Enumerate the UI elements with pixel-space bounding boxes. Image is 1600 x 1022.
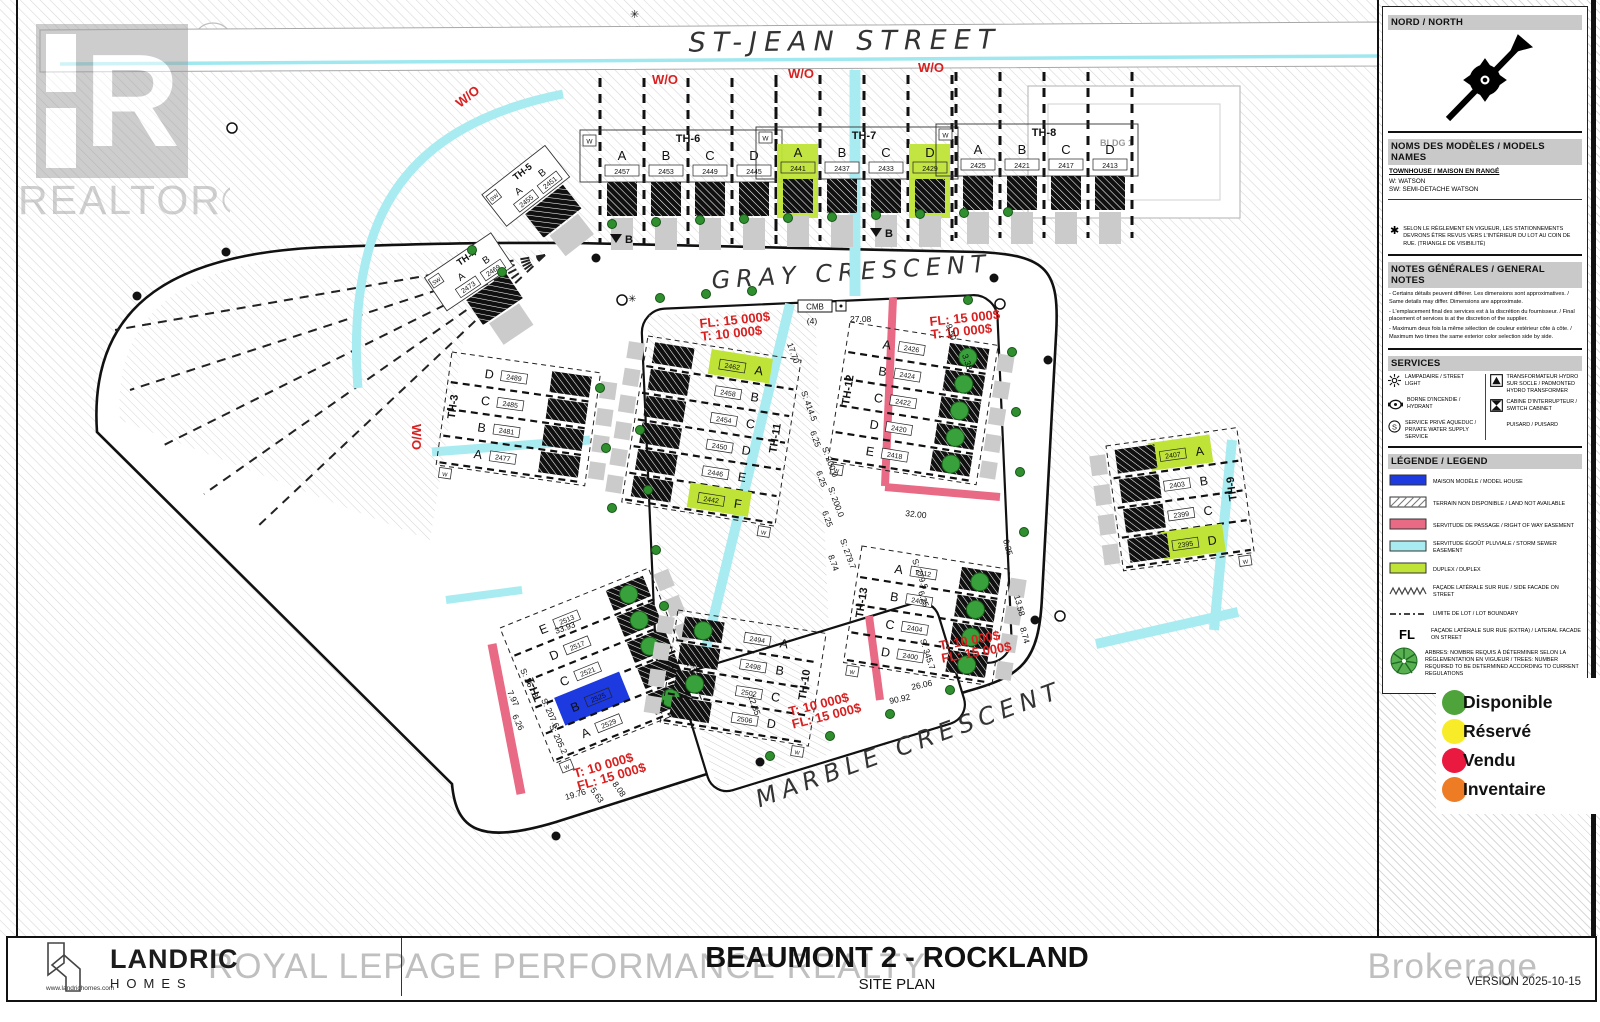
svg-text:C: C: [705, 148, 714, 163]
tree-icon: [886, 710, 895, 719]
tree-icon: [652, 218, 661, 227]
general-note: - Certains détails peuvent différer. Les…: [1389, 291, 1581, 307]
street-light-icon: [1388, 374, 1401, 392]
model-entry: W: WATSON: [1389, 178, 1582, 185]
status-legend: DisponibleRéservéVenduInventaire: [1436, 678, 1600, 814]
tree-icon: [766, 752, 775, 761]
svg-text:A: A: [618, 148, 627, 163]
drawing-title: BEAUMONT 2 - ROCKLAND SITE PLAN: [402, 942, 1392, 993]
svg-text:C: C: [480, 394, 491, 409]
status-item: Vendu: [1442, 748, 1600, 773]
tree-icon: [964, 296, 973, 305]
title-block: ROYAL LEPAGE PERFORMANCE REALTY Brokerag…: [6, 936, 1597, 1002]
panel-divider: [1377, 0, 1379, 936]
tree-icon: [656, 294, 665, 303]
legend-item: MAISON MODÈLE / MODEL HOUSE: [1389, 473, 1581, 491]
legend-swatch-solid: [1389, 539, 1427, 557]
svg-text:2429: 2429: [922, 166, 938, 173]
tree-icon: [652, 546, 661, 555]
svg-text:2457: 2457: [614, 169, 630, 176]
legend-item: FLFAÇADE LATÉRALE SUR RUE (EXTRA) / LATE…: [1389, 627, 1581, 642]
status-item: Inventaire: [1442, 777, 1600, 802]
services-title: SERVICES: [1388, 356, 1582, 371]
services-list: LAMPADAIRE / STREET LIGHTBORNE D'INCENDI…: [1388, 374, 1582, 441]
legend-swatch-solid: [1389, 517, 1427, 535]
tree-icon: [608, 220, 617, 229]
svg-text:B: B: [662, 148, 671, 163]
dimension-label: 27.08: [850, 314, 872, 324]
legend-list: MAISON MODÈLE / MODEL HOUSETERRAIN NON D…: [1388, 473, 1582, 681]
red-note: W/O: [652, 72, 678, 87]
tree-icon: [916, 210, 925, 219]
svg-text:2445: 2445: [746, 169, 762, 176]
models-category: TOWNHOUSE / MAISON EN RANGÉ: [1389, 168, 1582, 175]
svg-text:2421: 2421: [1014, 163, 1030, 170]
svg-text:D: D: [925, 145, 934, 160]
model-entry: SW: SEMI-DETACHE WATSON: [1389, 186, 1582, 193]
svg-text:CMB: CMB: [806, 303, 824, 312]
svg-text:C: C: [1203, 503, 1214, 518]
legend-swatch-tree: [1389, 646, 1419, 681]
svg-text:2437: 2437: [834, 166, 850, 173]
tree-icon: [602, 444, 611, 453]
tree-icon: [740, 215, 749, 224]
tree-icon: [872, 211, 881, 220]
tree-icon: [1020, 528, 1029, 537]
svg-text:D: D: [749, 148, 758, 163]
svg-text:D: D: [484, 367, 495, 382]
legend-title: LÉGENDE / LEGEND: [1388, 454, 1582, 469]
drawing-type: SITE PLAN: [402, 976, 1392, 993]
svg-text:W: W: [586, 139, 593, 146]
svg-text:2417: 2417: [1058, 163, 1074, 170]
tree-icon: [696, 216, 705, 225]
tree-icon: [748, 287, 757, 296]
legend-item: SERVITUDE ÉGOÛT PLUVIALE / STORM SEWER E…: [1389, 539, 1581, 557]
tree-icon: [608, 504, 617, 513]
legend-item: LIMITE DE LOT / LOT BOUNDARY: [1389, 605, 1581, 623]
tree-icon: [660, 602, 669, 611]
parking-star-note: ✱ SELON LE RÈGLEMENT EN VIGUEUR, LES STA…: [1390, 226, 1580, 248]
info-panel: NORD / NORTH NOMS DES MODÈLES / MODELS N…: [1382, 6, 1588, 694]
tree-icon: [828, 213, 837, 222]
puisard-icon: [1490, 422, 1503, 440]
service-item: BORNE D'INCENDIE / HYDRANT: [1388, 397, 1481, 415]
tree-icon: [960, 209, 969, 218]
legend-item: TERRAIN NON DISPONIBLE / LAND NOT AVAILA…: [1389, 495, 1581, 513]
svg-text:D: D: [1105, 142, 1114, 157]
legend-item: SERVITUDE DE PASSAGE / RIGHT OF WAY EASE…: [1389, 517, 1581, 535]
legend-swatch-fl: FL: [1389, 627, 1425, 642]
project-title: BEAUMONT 2 - ROCKLAND: [402, 942, 1392, 975]
models-title: NOMS DES MODÈLES / MODELS NAMES: [1388, 139, 1582, 165]
svg-text:W: W: [942, 133, 949, 140]
realtor-watermark: R REALTOR®: [10, 22, 230, 222]
model-entries: W: WATSONSW: SEMI-DETACHE WATSON: [1388, 178, 1582, 193]
svg-text:C: C: [881, 145, 890, 160]
tree-icon: [468, 246, 477, 255]
service-item: TRANSFORMATEUR HYDRO SUR SOCLE / PADMONT…: [1490, 374, 1583, 395]
svg-text:2413: 2413: [1102, 163, 1118, 170]
service-item: PUISARD / PUISARD: [1490, 422, 1583, 440]
service-item: LAMPADAIRE / STREET LIGHT: [1388, 374, 1481, 392]
svg-text:A: A: [974, 142, 983, 157]
tree-icon: [946, 686, 955, 695]
svg-text:REALTOR®: REALTOR®: [18, 177, 230, 222]
star-icon: ✱: [1390, 226, 1399, 248]
status-item: Réservé: [1442, 719, 1600, 744]
tree-icon: [498, 268, 507, 277]
svg-text:2441: 2441: [790, 166, 806, 173]
tree-icon: [636, 426, 645, 435]
status-item: Disponible: [1442, 690, 1600, 715]
svg-text:✳: ✳: [630, 9, 639, 21]
red-note: W/O: [918, 60, 944, 75]
svg-text:S: S: [1392, 422, 1397, 431]
svg-text:B: B: [625, 234, 633, 246]
legend-swatch-solid: [1389, 561, 1427, 579]
general-notes: - Certains détails peuvent différer. Les…: [1388, 291, 1582, 342]
svg-text:B: B: [838, 145, 847, 160]
svg-text:TH-6: TH-6: [676, 133, 700, 145]
svg-text:W/O: W/O: [918, 60, 944, 75]
svg-text:ST-JEAN STREET: ST-JEAN STREET: [688, 24, 1001, 58]
general-note: - Maximum deux fois la même sélection de…: [1389, 326, 1581, 342]
legend-item: ARBRES: NOMBRE REQUIS À DÉTERMINER SELON…: [1389, 646, 1581, 681]
general-notes-title: NOTES GÉNÉRALES / GENERAL NOTES: [1388, 262, 1582, 288]
legend-swatch-solid: [1389, 473, 1427, 491]
svg-text:2433: 2433: [878, 166, 894, 173]
svg-text:W/O: W/O: [652, 72, 678, 87]
svg-text:W/O: W/O: [788, 66, 814, 81]
switch-cabinet-icon: [1490, 399, 1503, 417]
svg-text:R: R: [84, 27, 179, 174]
svg-text:W/O: W/O: [409, 424, 424, 450]
legend-item: FAÇADE LATÉRALE SUR RUE / SIDE FACADE ON…: [1389, 583, 1581, 601]
tree-icon: [1012, 408, 1021, 417]
plan-left-border: [16, 0, 18, 936]
tree-icon: [1016, 468, 1025, 477]
legend-swatch-zigzag: [1389, 583, 1427, 601]
tree-icon: [784, 214, 793, 223]
site-plan-page: BLDG 1ST-JEAN STREET✳GRAY CRESCENTMARBLE…: [0, 0, 1600, 1022]
logo-url: www.landrichomes.com: [46, 985, 114, 992]
water-supply-icon: S: [1388, 420, 1401, 438]
hydrant-icon: [1388, 397, 1403, 415]
svg-text:2453: 2453: [658, 169, 674, 176]
tree-icon: [702, 290, 711, 299]
svg-text:B: B: [1018, 142, 1027, 157]
tree-icon: [596, 384, 605, 393]
tree-icon: [1004, 208, 1013, 217]
legend-swatch-dash: [1389, 605, 1427, 623]
svg-text:2449: 2449: [702, 169, 718, 176]
svg-text:D: D: [1207, 533, 1218, 548]
service-item: CABINE D'INTERRUPTEUR / SWITCH CABINET: [1490, 399, 1583, 417]
tree-icon: [644, 486, 653, 495]
tree-icon: [1008, 348, 1017, 357]
tree-icon: [826, 732, 835, 741]
svg-text:A: A: [794, 145, 803, 160]
compass-icon: [1388, 33, 1582, 125]
svg-text:2425: 2425: [970, 163, 986, 170]
service-item: SSERVICE PRIVÉ AQUEDUC / PRIVATE WATER S…: [1388, 420, 1481, 441]
general-note: - L'emplacement final des services est à…: [1389, 309, 1581, 325]
legend-swatch-hatch: [1389, 495, 1427, 513]
legend-item: DUPLEX / DUPLEX: [1389, 561, 1581, 579]
red-note: W/O: [788, 66, 814, 81]
svg-text:✳: ✳: [628, 294, 636, 305]
svg-text:W: W: [762, 136, 769, 143]
red-note: W/O: [409, 424, 424, 450]
north-title: NORD / NORTH: [1388, 15, 1582, 30]
svg-text:C: C: [1061, 142, 1070, 157]
version-label: VERSION 2025-10-15: [1467, 976, 1581, 988]
svg-text:(4): (4): [807, 316, 818, 326]
svg-text:B: B: [885, 228, 893, 240]
svg-text:TH-8: TH-8: [1032, 127, 1056, 139]
transformer-icon: [1490, 374, 1503, 392]
svg-text:TH-7: TH-7: [852, 130, 876, 142]
